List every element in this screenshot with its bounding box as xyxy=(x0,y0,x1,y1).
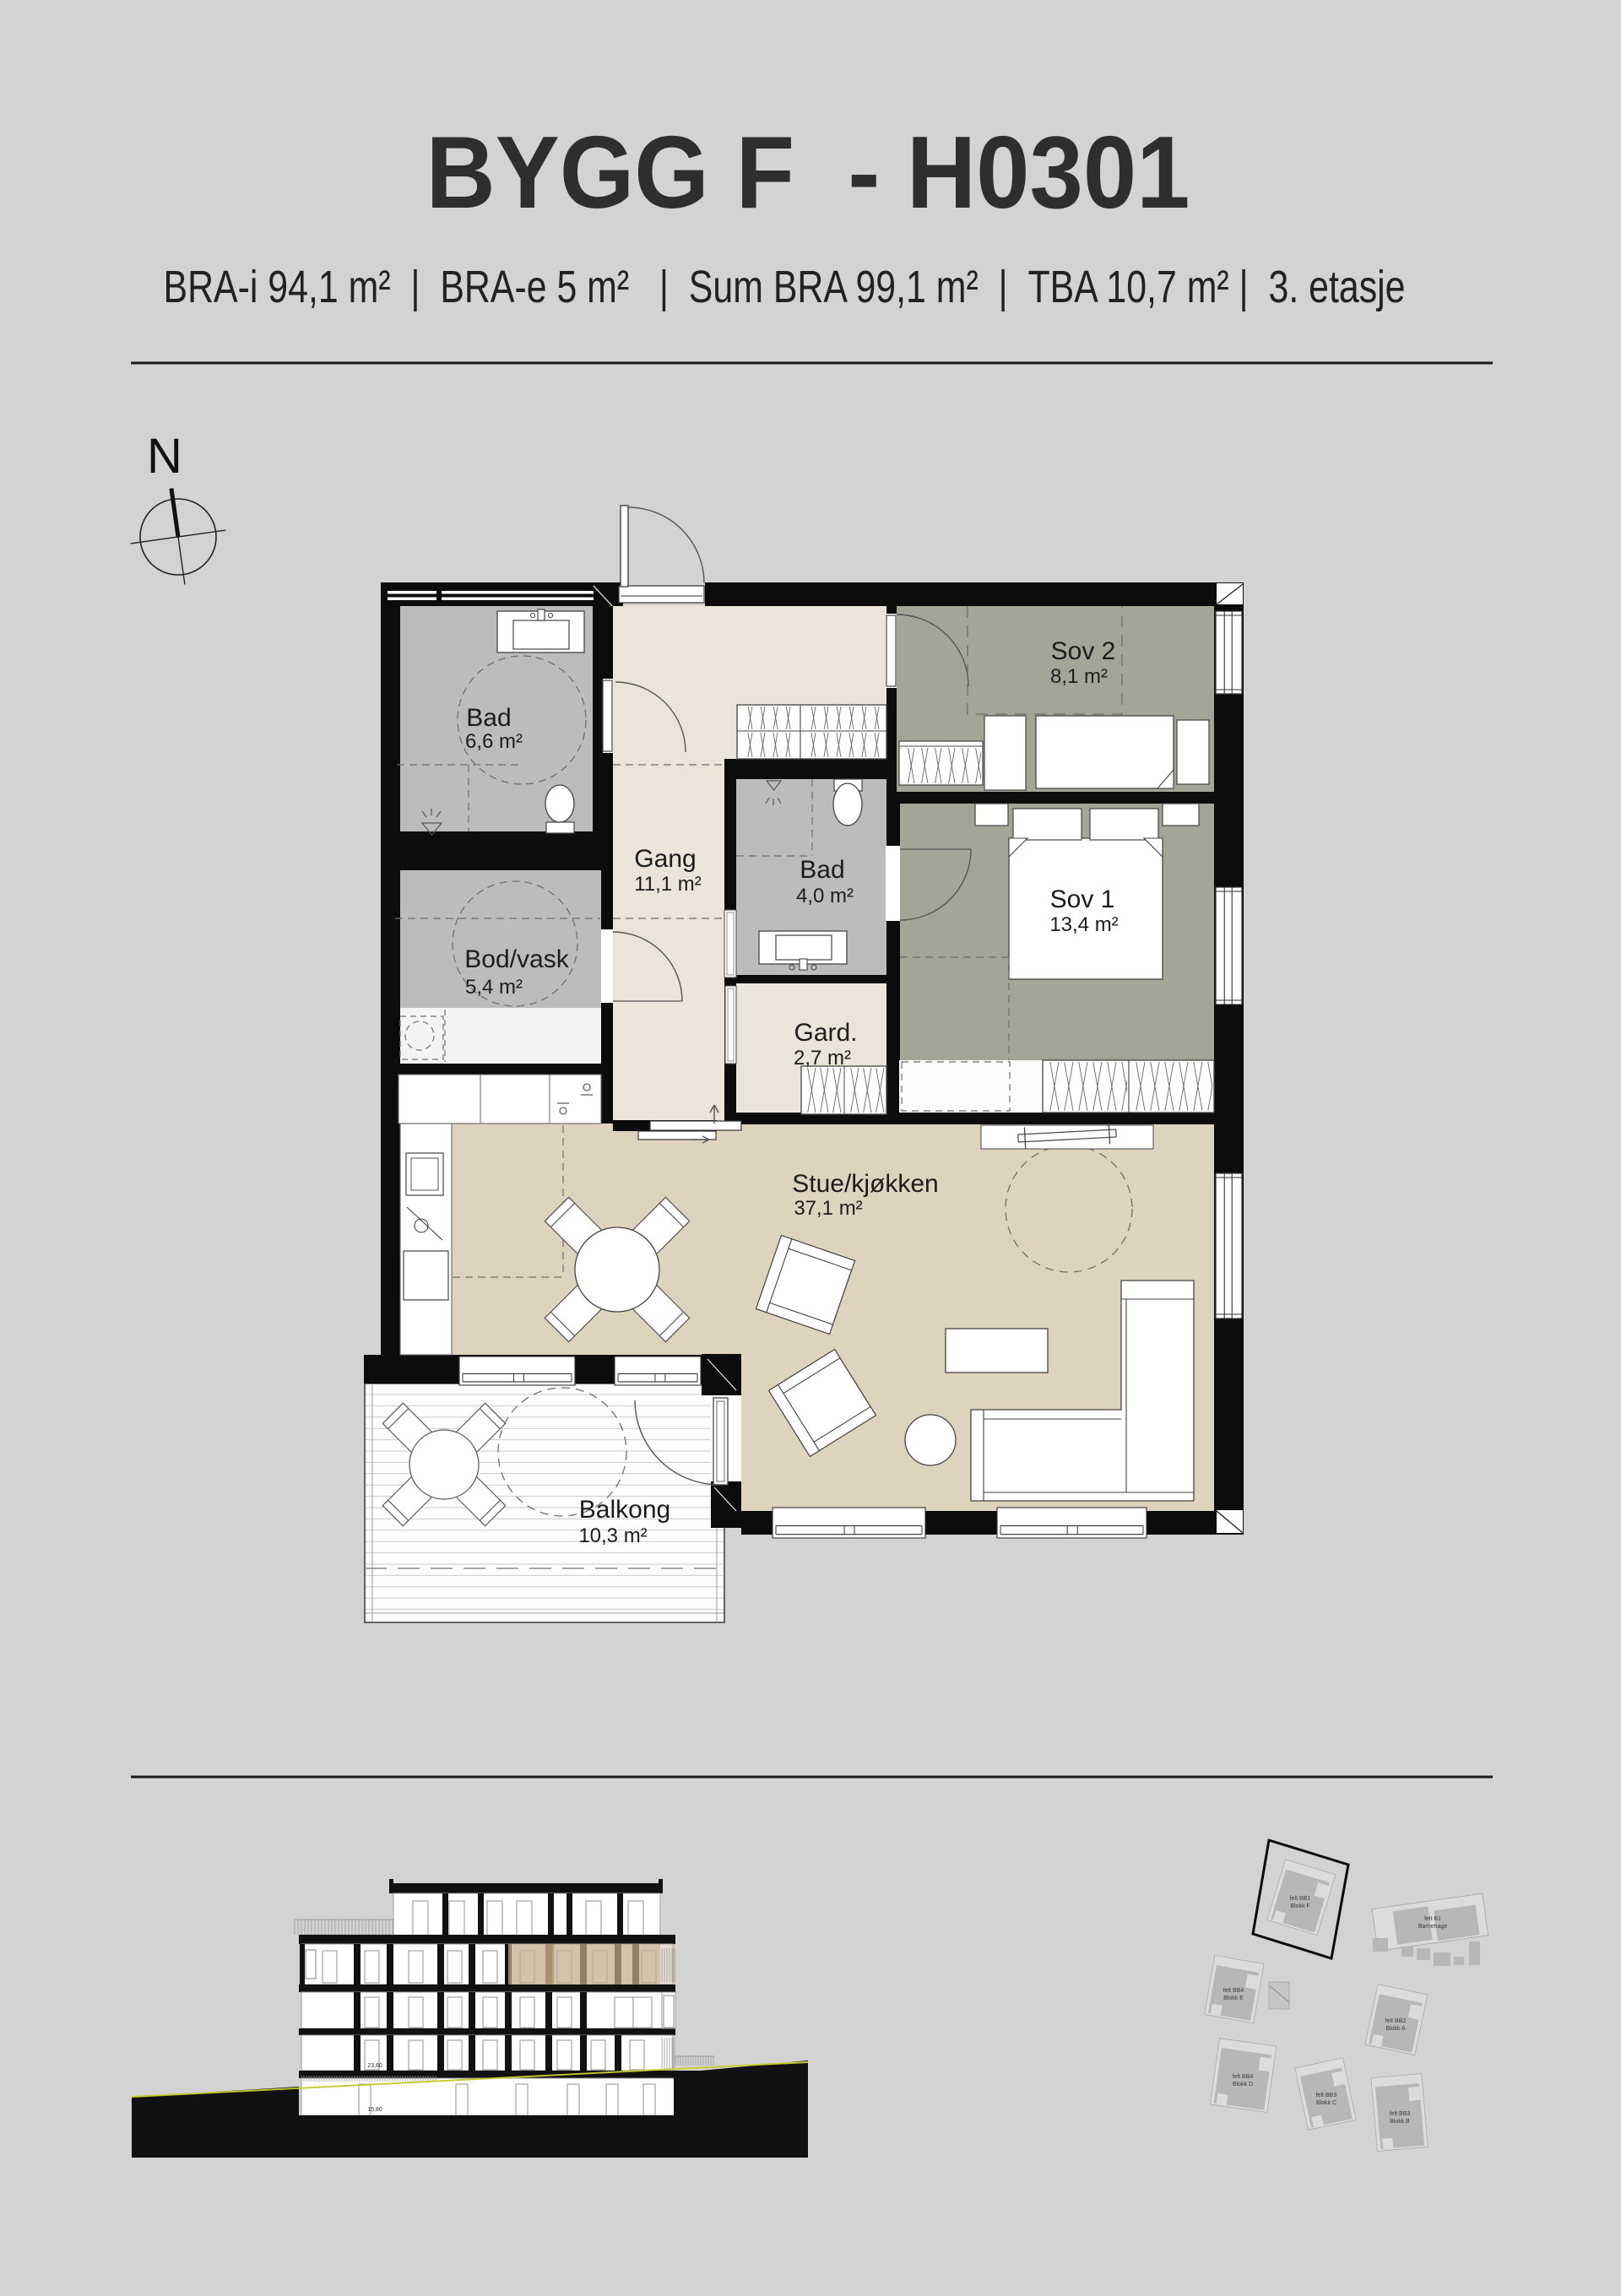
svg-text:Blokk B: Blokk B xyxy=(1390,2119,1410,2125)
svg-text:felt BB4: felt BB4 xyxy=(1223,1988,1244,1994)
svg-text:Blokk E: Blokk E xyxy=(1223,1995,1244,2001)
svg-text:Blokk C: Blokk C xyxy=(1316,2100,1336,2106)
svg-text:Bod/vask: Bod/vask xyxy=(464,945,569,973)
svg-text:felt BB1: felt BB1 xyxy=(1290,1896,1311,1902)
svg-text:Sov 1: Sov 1 xyxy=(1050,885,1115,913)
svg-text:15,80: 15,80 xyxy=(367,2107,382,2113)
svg-text:felt BB4: felt BB4 xyxy=(1233,2074,1254,2080)
svg-text:Balkong: Balkong xyxy=(579,1496,670,1524)
svg-text:23,60: 23,60 xyxy=(367,2063,382,2069)
svg-text:2,7 m²: 2,7 m² xyxy=(794,1047,851,1069)
svg-text:BRA-i 94,1 m² | BRA-e 5 m²: BRA-i 94,1 m² | BRA-e 5 m² | Sum BRA 99,… xyxy=(164,262,1406,312)
svg-text:Blokk F: Blokk F xyxy=(1290,1903,1309,1909)
svg-text:10,3 m²: 10,3 m² xyxy=(578,1524,647,1547)
svg-text:Blokk A: Blokk A xyxy=(1385,2026,1406,2032)
svg-text:Gang: Gang xyxy=(634,845,696,873)
svg-text:37,1 m²: 37,1 m² xyxy=(794,1197,862,1220)
svg-text:felt BB3: felt BB3 xyxy=(1316,2093,1337,2098)
svg-text:5,4 m²: 5,4 m² xyxy=(465,976,523,999)
svg-text:Bad: Bad xyxy=(466,704,511,732)
svg-text:Stue/kjøkken: Stue/kjøkken xyxy=(792,1170,938,1198)
svg-text:Sov 2: Sov 2 xyxy=(1051,637,1116,665)
svg-text:felt BB2: felt BB2 xyxy=(1385,2018,1407,2024)
svg-text:11,1 m²: 11,1 m² xyxy=(634,873,702,896)
svg-text:4,0 m²: 4,0 m² xyxy=(796,885,854,907)
svg-text:8,1 m²: 8,1 m² xyxy=(1050,665,1108,688)
svg-text:N: N xyxy=(147,429,182,484)
svg-text:Bad: Bad xyxy=(800,856,844,884)
svg-text:felt B1: felt B1 xyxy=(1424,1916,1441,1922)
svg-text:6,6 m²: 6,6 m² xyxy=(465,730,523,753)
svg-text:Barnehage: Barnehage xyxy=(1418,1924,1447,1930)
svg-text:BYGG F - H0301: BYGG F - H0301 xyxy=(426,115,1190,230)
svg-text:Gard.: Gard. xyxy=(794,1019,857,1047)
svg-text:13,4 m²: 13,4 m² xyxy=(1049,913,1118,936)
svg-text:Blokk D: Blokk D xyxy=(1233,2082,1253,2088)
svg-text:felt BB3: felt BB3 xyxy=(1390,2111,1411,2117)
